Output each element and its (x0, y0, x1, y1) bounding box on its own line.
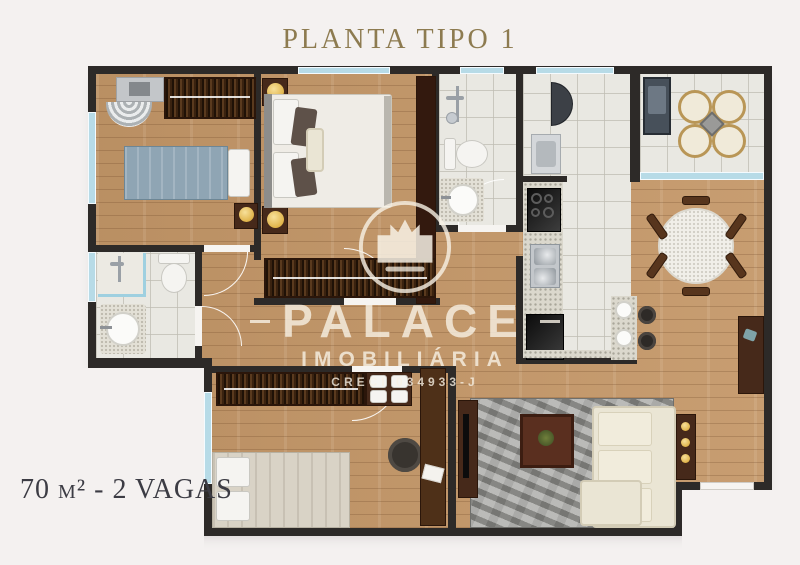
dining-chair (682, 196, 710, 205)
wardrobe-bedroom1 (164, 77, 256, 119)
wall-kitchen-left (516, 256, 523, 364)
ottoman (388, 438, 422, 472)
door-bathroom1 (458, 225, 506, 232)
sink-basin (534, 268, 556, 285)
sink-bathroom2 (106, 312, 140, 346)
sofa-cushion (598, 412, 652, 446)
grill-top (648, 86, 666, 114)
burner (531, 208, 540, 217)
wall-bathroom1-bottom-b (506, 225, 523, 232)
wall-hall-north-a (254, 298, 344, 305)
faucet-bathroom1 (441, 196, 451, 199)
coffee-table-plant (538, 430, 554, 446)
wall-right (764, 66, 772, 490)
closet-master (264, 258, 436, 298)
shower-icon (118, 256, 121, 282)
wall-bedroom3-living (448, 366, 456, 528)
plate (615, 329, 633, 347)
lamp-icon (239, 207, 254, 222)
wall-top (88, 66, 772, 74)
door-master (344, 298, 396, 305)
shelf-box (391, 390, 408, 403)
dining-chair (682, 287, 710, 296)
desk-bedroom3 (420, 368, 446, 526)
burner (544, 194, 553, 203)
shelf-box (370, 390, 387, 403)
pillow-accent-master (306, 128, 324, 172)
outside-notch-right (682, 490, 800, 565)
wall-bathroom1-right (516, 74, 523, 232)
sofa-chaise (580, 480, 642, 526)
wall-bottom (204, 528, 682, 536)
patio-door (700, 482, 754, 490)
bar-stool (638, 306, 656, 324)
headboard-master (264, 94, 272, 208)
door-bedroom1 (204, 245, 250, 252)
shower-box-bathroom2 (98, 253, 146, 297)
wall-bathroom2-right-b (195, 346, 202, 362)
burner (543, 207, 554, 218)
wall-bathroom2-right-a (195, 252, 202, 306)
window-bathroom2 (88, 252, 96, 302)
page-title: PLANTA TIPO 1 (0, 24, 800, 56)
pillow-bedroom1 (228, 149, 250, 197)
bar-stool (638, 332, 656, 350)
wall-bedroom1-bottom-b (250, 245, 261, 252)
floorplan-image: PLANTA TIPO 1 (0, 0, 800, 565)
shelf-box (370, 375, 387, 388)
wall-balcony-left (630, 66, 640, 182)
wall-bedroom1-bottom-a (96, 245, 204, 252)
decor-plate (681, 454, 690, 463)
faucet-bathroom2 (100, 326, 112, 329)
window-bedroom3 (204, 392, 212, 484)
wardrobe-bedroom3 (216, 372, 366, 406)
toilet-bathroom2 (161, 263, 187, 293)
toilet-tank-bathroom1 (444, 138, 456, 170)
bed-single-bedroom1 (124, 146, 228, 200)
tv-icon (463, 414, 469, 478)
window-master (298, 67, 390, 74)
laptop-icon (129, 82, 150, 96)
sofa-cushion (598, 450, 652, 484)
bed-foot-trim-master (384, 96, 391, 206)
shelf-box (391, 375, 408, 388)
decor-plate (681, 422, 690, 431)
wall-left-wing-bottom (88, 358, 212, 368)
door-bathroom2 (195, 306, 202, 346)
window-bathroom1 (460, 67, 504, 74)
burner (531, 193, 542, 204)
window-bedroom1 (88, 112, 96, 204)
shower-arm (446, 96, 464, 100)
sink-bathroom1 (447, 184, 479, 216)
plate (615, 301, 633, 319)
shower-arm (110, 262, 124, 266)
area-label: 70 m² - 2 VAGAS (20, 474, 233, 506)
shower-head (446, 112, 458, 124)
toilet-bathroom1 (456, 140, 488, 168)
dining-table (658, 208, 734, 284)
laundry-basin (536, 141, 556, 167)
sink-basin (534, 248, 556, 265)
window-service (536, 67, 614, 74)
balcony-glass-door (640, 172, 764, 180)
lamp-icon (267, 211, 284, 228)
decor-plate (681, 438, 690, 447)
outside-notch-left (80, 368, 204, 565)
console-right-wall (738, 316, 764, 394)
